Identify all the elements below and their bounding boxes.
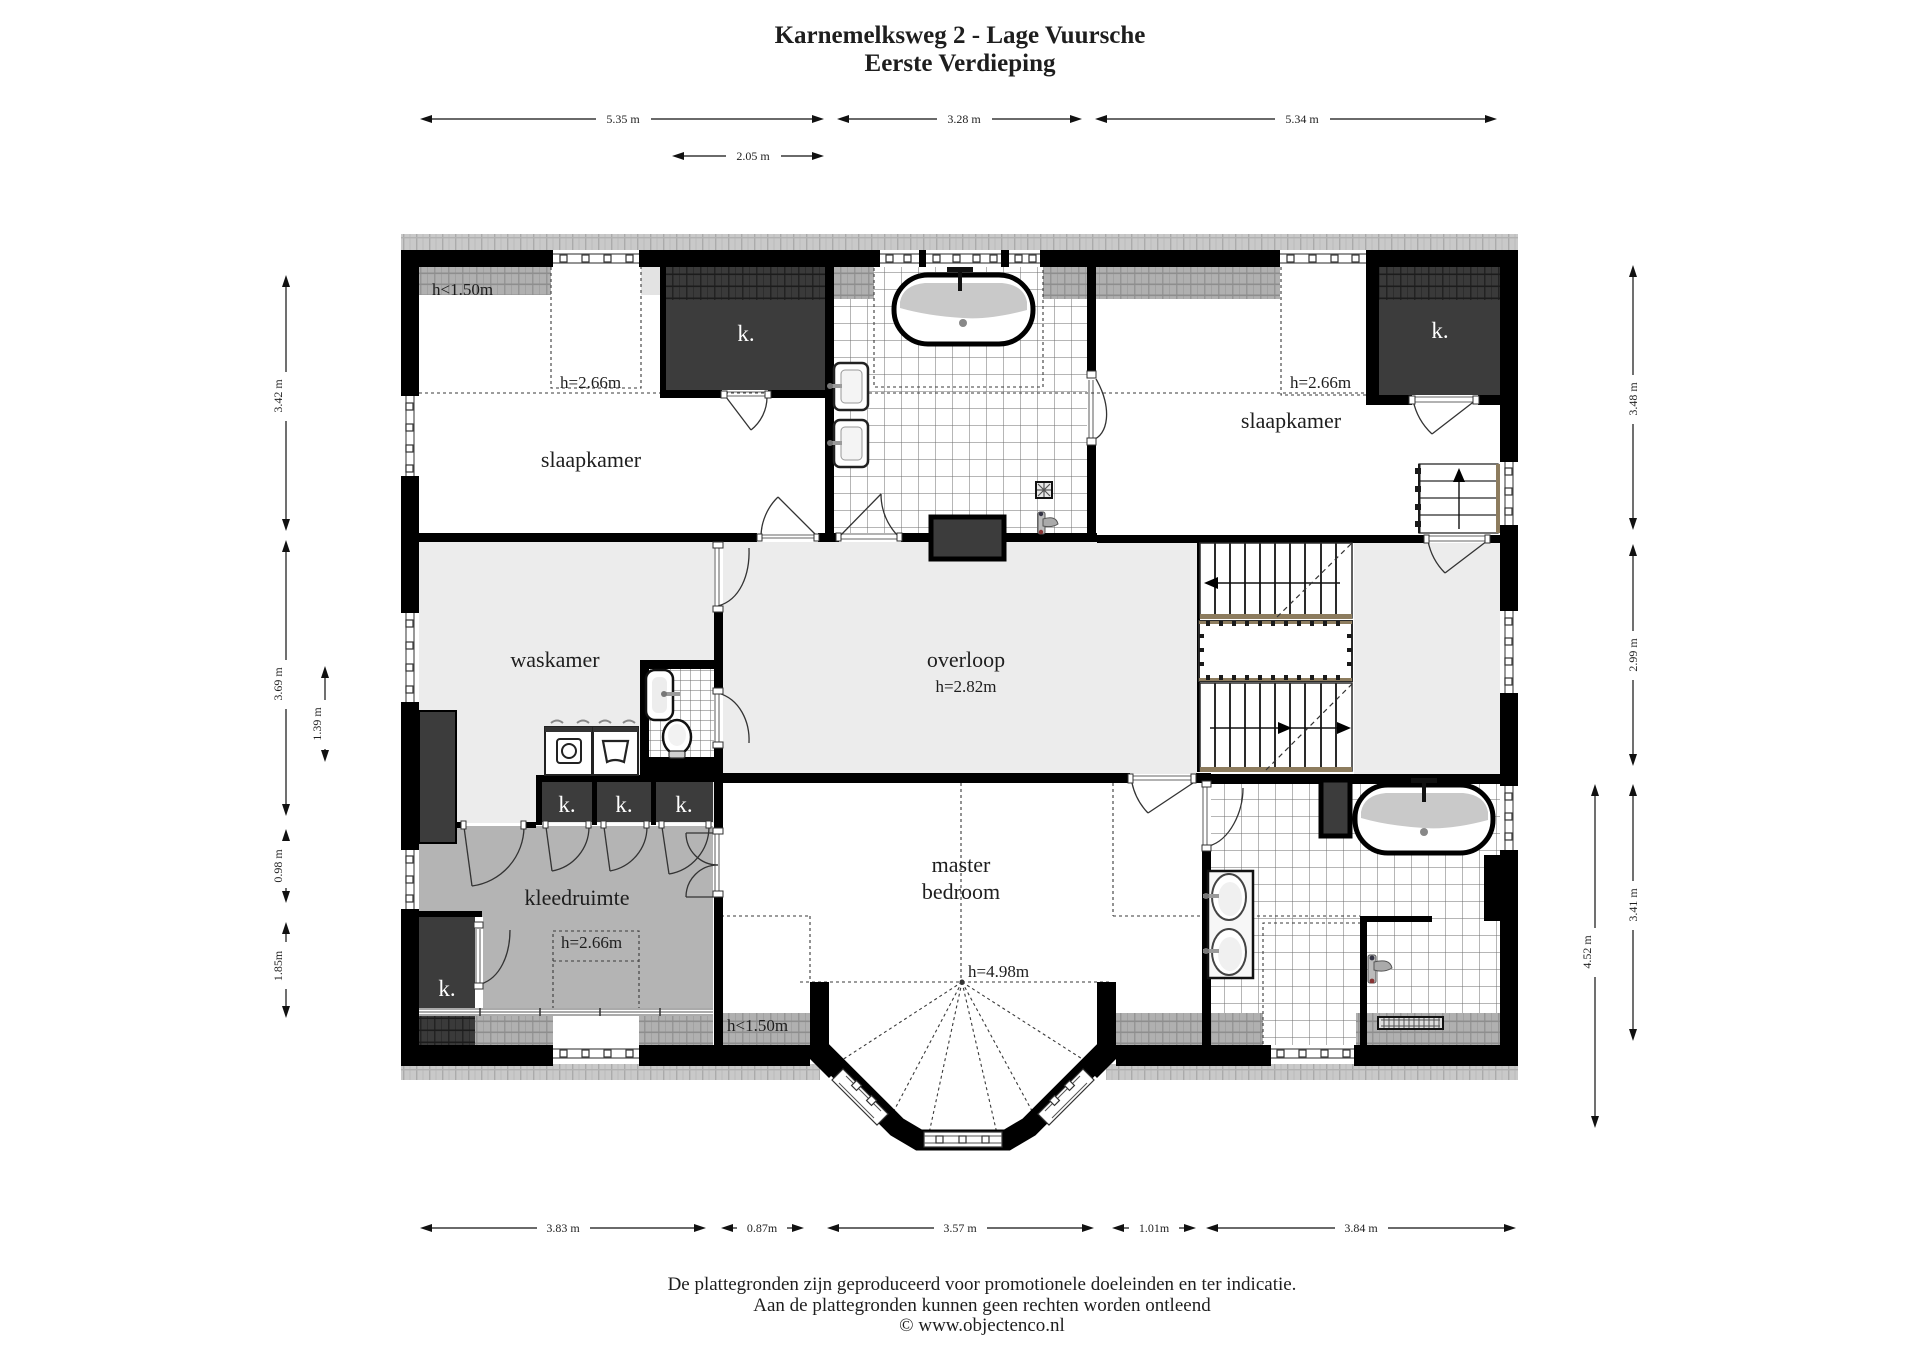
svg-text:2.99 m: 2.99 m	[1626, 638, 1640, 672]
svg-text:k.: k.	[615, 792, 632, 817]
svg-text:2.05 m: 2.05 m	[736, 149, 770, 163]
svg-text:h=2.66m: h=2.66m	[1290, 373, 1351, 392]
svg-text:1.39 m: 1.39 m	[310, 707, 324, 741]
svg-text:slaapkamer: slaapkamer	[1241, 408, 1342, 433]
svg-text:h=4.98m: h=4.98m	[968, 962, 1029, 981]
svg-text:3.57 m: 3.57 m	[943, 1221, 977, 1235]
svg-text:k.: k.	[438, 976, 455, 1001]
svg-text:3.48 m: 3.48 m	[1626, 382, 1640, 416]
svg-text:Eerste Verdieping: Eerste Verdieping	[865, 50, 1056, 77]
svg-text:De plattegronden zijn geproduc: De plattegronden zijn geproduceerd voor …	[668, 1274, 1297, 1295]
svg-text:master: master	[932, 852, 991, 877]
svg-text:3.84 m: 3.84 m	[1344, 1221, 1378, 1235]
svg-text:k.: k.	[675, 792, 692, 817]
svg-text:Aan de plattegronden kunnen ge: Aan de plattegronden kunnen geen rechten…	[753, 1295, 1211, 1316]
svg-text:5.34 m: 5.34 m	[1285, 112, 1319, 126]
svg-text:slaapkamer: slaapkamer	[541, 447, 642, 472]
svg-text:5.35 m: 5.35 m	[606, 112, 640, 126]
svg-text:h=2.82m: h=2.82m	[935, 677, 996, 696]
svg-text:overloop: overloop	[927, 647, 1005, 672]
svg-text:h=2.66m: h=2.66m	[561, 933, 622, 952]
svg-text:3.69 m: 3.69 m	[271, 667, 285, 701]
svg-text:3.41 m: 3.41 m	[1626, 888, 1640, 922]
svg-text:0.87m: 0.87m	[747, 1221, 778, 1235]
svg-text:0.98 m: 0.98 m	[271, 849, 285, 883]
svg-text:k.: k.	[737, 321, 754, 346]
svg-text:k.: k.	[558, 792, 575, 817]
svg-text:Karnemelksweg 2 - Lage Vuursch: Karnemelksweg 2 - Lage Vuursche	[775, 22, 1146, 49]
svg-text:3.83 m: 3.83 m	[546, 1221, 580, 1235]
svg-text:h<1.50m: h<1.50m	[432, 280, 493, 299]
svg-text:h<1.50m: h<1.50m	[727, 1016, 788, 1035]
svg-text:bedroom: bedroom	[922, 879, 1000, 904]
svg-text:h=2.66m: h=2.66m	[560, 373, 621, 392]
svg-text:1.01m: 1.01m	[1139, 1221, 1170, 1235]
svg-text:3.42 m: 3.42 m	[271, 379, 285, 413]
svg-text:kleedruimte: kleedruimte	[524, 885, 629, 910]
svg-text:4.52 m: 4.52 m	[1580, 935, 1594, 969]
svg-text:1.85m: 1.85m	[271, 950, 285, 981]
svg-text:3.28 m: 3.28 m	[947, 112, 981, 126]
svg-text:© www.objectenco.nl: © www.objectenco.nl	[899, 1315, 1065, 1336]
svg-text:waskamer: waskamer	[510, 647, 600, 672]
svg-text:k.: k.	[1431, 318, 1448, 343]
